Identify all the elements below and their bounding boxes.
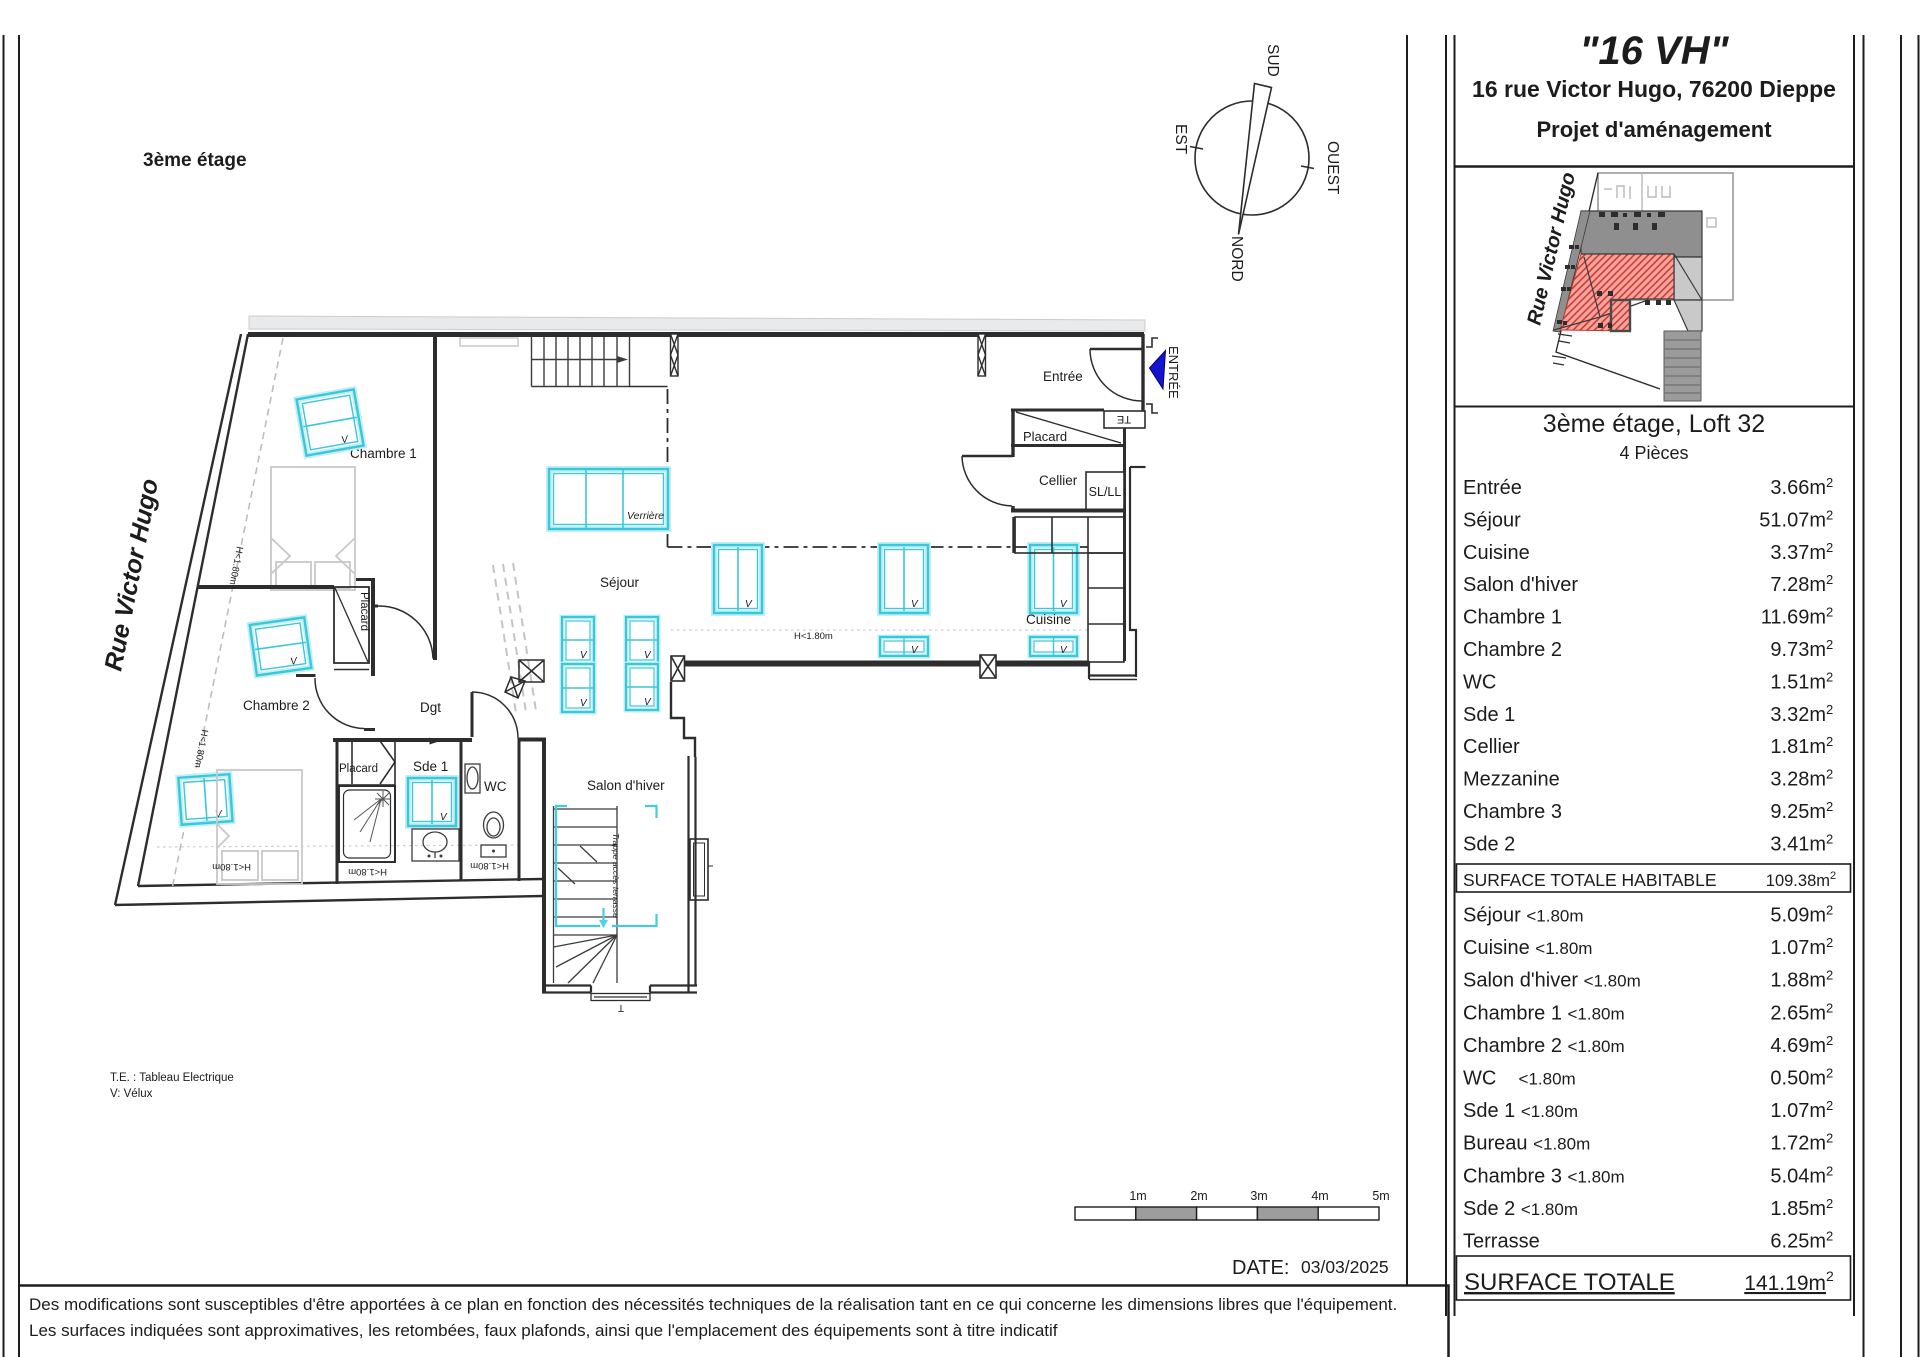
svg-text:109.38m: 109.38m	[1766, 872, 1830, 890]
svg-text:SUD: SUD	[1264, 44, 1281, 77]
svg-text:9.73m: 9.73m	[1770, 639, 1826, 661]
svg-text:ENTRÉE: ENTRÉE	[1166, 346, 1181, 399]
svg-text:2: 2	[1826, 903, 1833, 918]
svg-text:3ème étage: 3ème étage	[143, 150, 247, 171]
svg-text:1.72m: 1.72m	[1770, 1133, 1826, 1155]
svg-text:Cuisine: Cuisine	[1463, 542, 1530, 564]
svg-text:NORD: NORD	[1228, 236, 1245, 282]
svg-text:Placard: Placard	[358, 592, 370, 631]
svg-text:3m: 3m	[1250, 1189, 1267, 1203]
svg-text:7.28m: 7.28m	[1770, 574, 1826, 596]
svg-text:3.41m: 3.41m	[1770, 833, 1826, 855]
svg-text:H<1.80m: H<1.80m	[794, 631, 833, 642]
svg-text:Cuisine: Cuisine	[1026, 612, 1071, 627]
svg-text:2: 2	[1826, 968, 1833, 983]
svg-text:OUEST: OUEST	[1324, 141, 1341, 195]
svg-text:2: 2	[1826, 767, 1833, 782]
svg-text:2: 2	[1826, 1268, 1834, 1284]
svg-text:1.88m: 1.88m	[1770, 970, 1826, 992]
svg-text:Chambre 2: Chambre 2	[243, 698, 310, 713]
svg-text:2: 2	[1826, 1163, 1833, 1178]
svg-text:2: 2	[1826, 1066, 1833, 1081]
svg-text:2: 2	[1826, 572, 1833, 587]
svg-text:3.66m: 3.66m	[1770, 477, 1826, 499]
svg-text:3.28m: 3.28m	[1770, 769, 1826, 791]
svg-text:Sde 2: Sde 2	[1463, 833, 1515, 855]
svg-text:2: 2	[1826, 475, 1833, 490]
svg-text:Terrasse: Terrasse	[1463, 1231, 1540, 1253]
svg-text:2: 2	[1826, 637, 1833, 652]
svg-text:2: 2	[1826, 540, 1833, 555]
svg-text:0.50m: 0.50m	[1770, 1068, 1826, 1090]
svg-text:3ème étage, Loft 32: 3ème étage, Loft 32	[1543, 410, 1765, 438]
svg-text:2: 2	[1826, 1000, 1833, 1015]
svg-text:H<1.80m: H<1.80m	[212, 861, 251, 872]
svg-text:2: 2	[1826, 1033, 1833, 1048]
svg-text:2: 2	[1826, 1098, 1833, 1113]
svg-text:Entrée: Entrée	[1463, 477, 1522, 499]
svg-text:03/03/2025: 03/03/2025	[1301, 1257, 1389, 1277]
svg-text:2: 2	[1826, 1229, 1833, 1244]
svg-text:Sde 1: Sde 1	[413, 759, 448, 774]
svg-text:Salon d'hiver <1.80m: Salon d'hiver <1.80m	[1463, 970, 1641, 992]
svg-text:V: Vélux: V: Vélux	[110, 1088, 153, 1100]
svg-text:Placard: Placard	[339, 763, 378, 775]
svg-text:1.51m: 1.51m	[1770, 671, 1826, 693]
svg-text:1.07m: 1.07m	[1770, 937, 1826, 959]
svg-text:Salon d'hiver: Salon d'hiver	[1463, 574, 1578, 596]
svg-text:SL/LL: SL/LL	[1089, 485, 1122, 499]
svg-text:Les surfaces indiquées sont ap: Les surfaces indiquées sont approximativ…	[29, 1321, 1058, 1340]
svg-text:2: 2	[1826, 734, 1833, 749]
svg-text:H<1.80m: H<1.80m	[470, 860, 509, 871]
svg-text:2: 2	[1826, 605, 1833, 620]
svg-text:2m: 2m	[1190, 1189, 1207, 1203]
svg-text:2: 2	[1826, 1131, 1833, 1146]
svg-text:T: T	[618, 1002, 624, 1013]
svg-text:WC: WC	[484, 779, 507, 794]
svg-text:Chambre 1: Chambre 1	[1463, 607, 1562, 629]
svg-text:Séjour: Séjour	[1463, 509, 1521, 531]
svg-text:6.25m: 6.25m	[1770, 1231, 1826, 1253]
svg-text:Bureau <1.80m: Bureau <1.80m	[1463, 1133, 1590, 1155]
svg-text:Chambre 3 <1.80m: Chambre 3 <1.80m	[1463, 1165, 1625, 1187]
svg-text:WC: WC	[1463, 671, 1496, 693]
svg-text:Chambre 2 <1.80m: Chambre 2 <1.80m	[1463, 1035, 1625, 1057]
svg-text:3.32m: 3.32m	[1770, 704, 1826, 726]
svg-text:Sde 2 <1.80m: Sde 2 <1.80m	[1463, 1198, 1578, 1220]
svg-text:3.37m: 3.37m	[1770, 542, 1826, 564]
svg-text:2: 2	[1826, 831, 1833, 846]
svg-text:2: 2	[1826, 935, 1833, 950]
svg-text:2: 2	[1826, 702, 1833, 717]
svg-text:T.E. : Tableau Electrique: T.E. : Tableau Electrique	[110, 1072, 234, 1084]
svg-text:2: 2	[1826, 799, 1833, 814]
svg-text:1.81m: 1.81m	[1770, 736, 1826, 758]
svg-text:5m: 5m	[1372, 1189, 1389, 1203]
svg-text:4 Pièces: 4 Pièces	[1619, 443, 1688, 463]
svg-text:EST: EST	[1172, 124, 1189, 155]
svg-text:Dgt: Dgt	[420, 700, 441, 715]
svg-text:5.09m: 5.09m	[1770, 905, 1826, 927]
svg-text:DATE:: DATE:	[1232, 1257, 1289, 1279]
svg-text:2: 2	[1826, 669, 1833, 684]
svg-text:1.85m: 1.85m	[1770, 1198, 1826, 1220]
svg-text:Chambre 1 <1.80m: Chambre 1 <1.80m	[1463, 1002, 1625, 1024]
svg-text:1m: 1m	[1129, 1189, 1146, 1203]
svg-text:2.65m: 2.65m	[1770, 1002, 1826, 1024]
svg-text:Chambre 2: Chambre 2	[1463, 639, 1562, 661]
svg-text:51.07m: 51.07m	[1759, 509, 1826, 531]
svg-text:Trappe accès terrasse: Trappe accès terrasse	[611, 833, 621, 918]
svg-text:WC <1.80m: WC <1.80m	[1463, 1068, 1576, 1090]
svg-text:Cuisine <1.80m: Cuisine <1.80m	[1463, 937, 1592, 959]
svg-text:SURFACE TOTALE: SURFACE TOTALE	[1464, 1269, 1675, 1296]
svg-text:H<1.80m: H<1.80m	[348, 866, 387, 877]
svg-text:SURFACE TOTALE HABITABLE: SURFACE TOTALE HABITABLE	[1463, 870, 1717, 890]
svg-text:Projet d'aménagement: Projet d'aménagement	[1536, 117, 1772, 142]
svg-text:Sde 1: Sde 1	[1463, 704, 1515, 726]
svg-text:Des modifications sont suscep: Des modifications sont susceptibles d'êt…	[29, 1295, 1397, 1314]
svg-text:Verrière: Verrière	[627, 510, 664, 522]
svg-text:Cellier: Cellier	[1463, 736, 1520, 758]
svg-text:9.25m: 9.25m	[1770, 801, 1826, 823]
svg-text:5.04m: 5.04m	[1770, 1165, 1826, 1187]
svg-text:Placard: Placard	[1023, 429, 1067, 444]
svg-text:11.69m: 11.69m	[1761, 607, 1826, 629]
svg-text:4.69m: 4.69m	[1770, 1035, 1826, 1057]
svg-text:2: 2	[1826, 1196, 1833, 1211]
svg-text:TE: TE	[1117, 413, 1131, 425]
svg-text:Sde 1 <1.80m: Sde 1 <1.80m	[1463, 1100, 1578, 1122]
svg-text:Cellier: Cellier	[1039, 473, 1078, 488]
svg-text:Séjour: Séjour	[600, 575, 640, 590]
svg-text:Séjour <1.80m: Séjour <1.80m	[1463, 905, 1584, 927]
svg-text:Entrée: Entrée	[1043, 369, 1083, 384]
svg-text:Salon d'hiver: Salon d'hiver	[587, 778, 665, 793]
svg-text:Chambre 3: Chambre 3	[1463, 801, 1562, 823]
svg-text:2: 2	[1830, 870, 1836, 882]
svg-text:141.19m: 141.19m	[1744, 1272, 1826, 1295]
svg-text:"16 VH": "16 VH"	[1579, 29, 1729, 73]
svg-text:Mezzanine: Mezzanine	[1463, 769, 1560, 791]
svg-text:2: 2	[1826, 507, 1833, 522]
svg-text:16 rue Victor Hugo, 76200 Diep: 16 rue Victor Hugo, 76200 Dieppe	[1472, 76, 1836, 102]
svg-text:4m: 4m	[1311, 1189, 1328, 1203]
svg-text:1.07m: 1.07m	[1770, 1100, 1826, 1122]
